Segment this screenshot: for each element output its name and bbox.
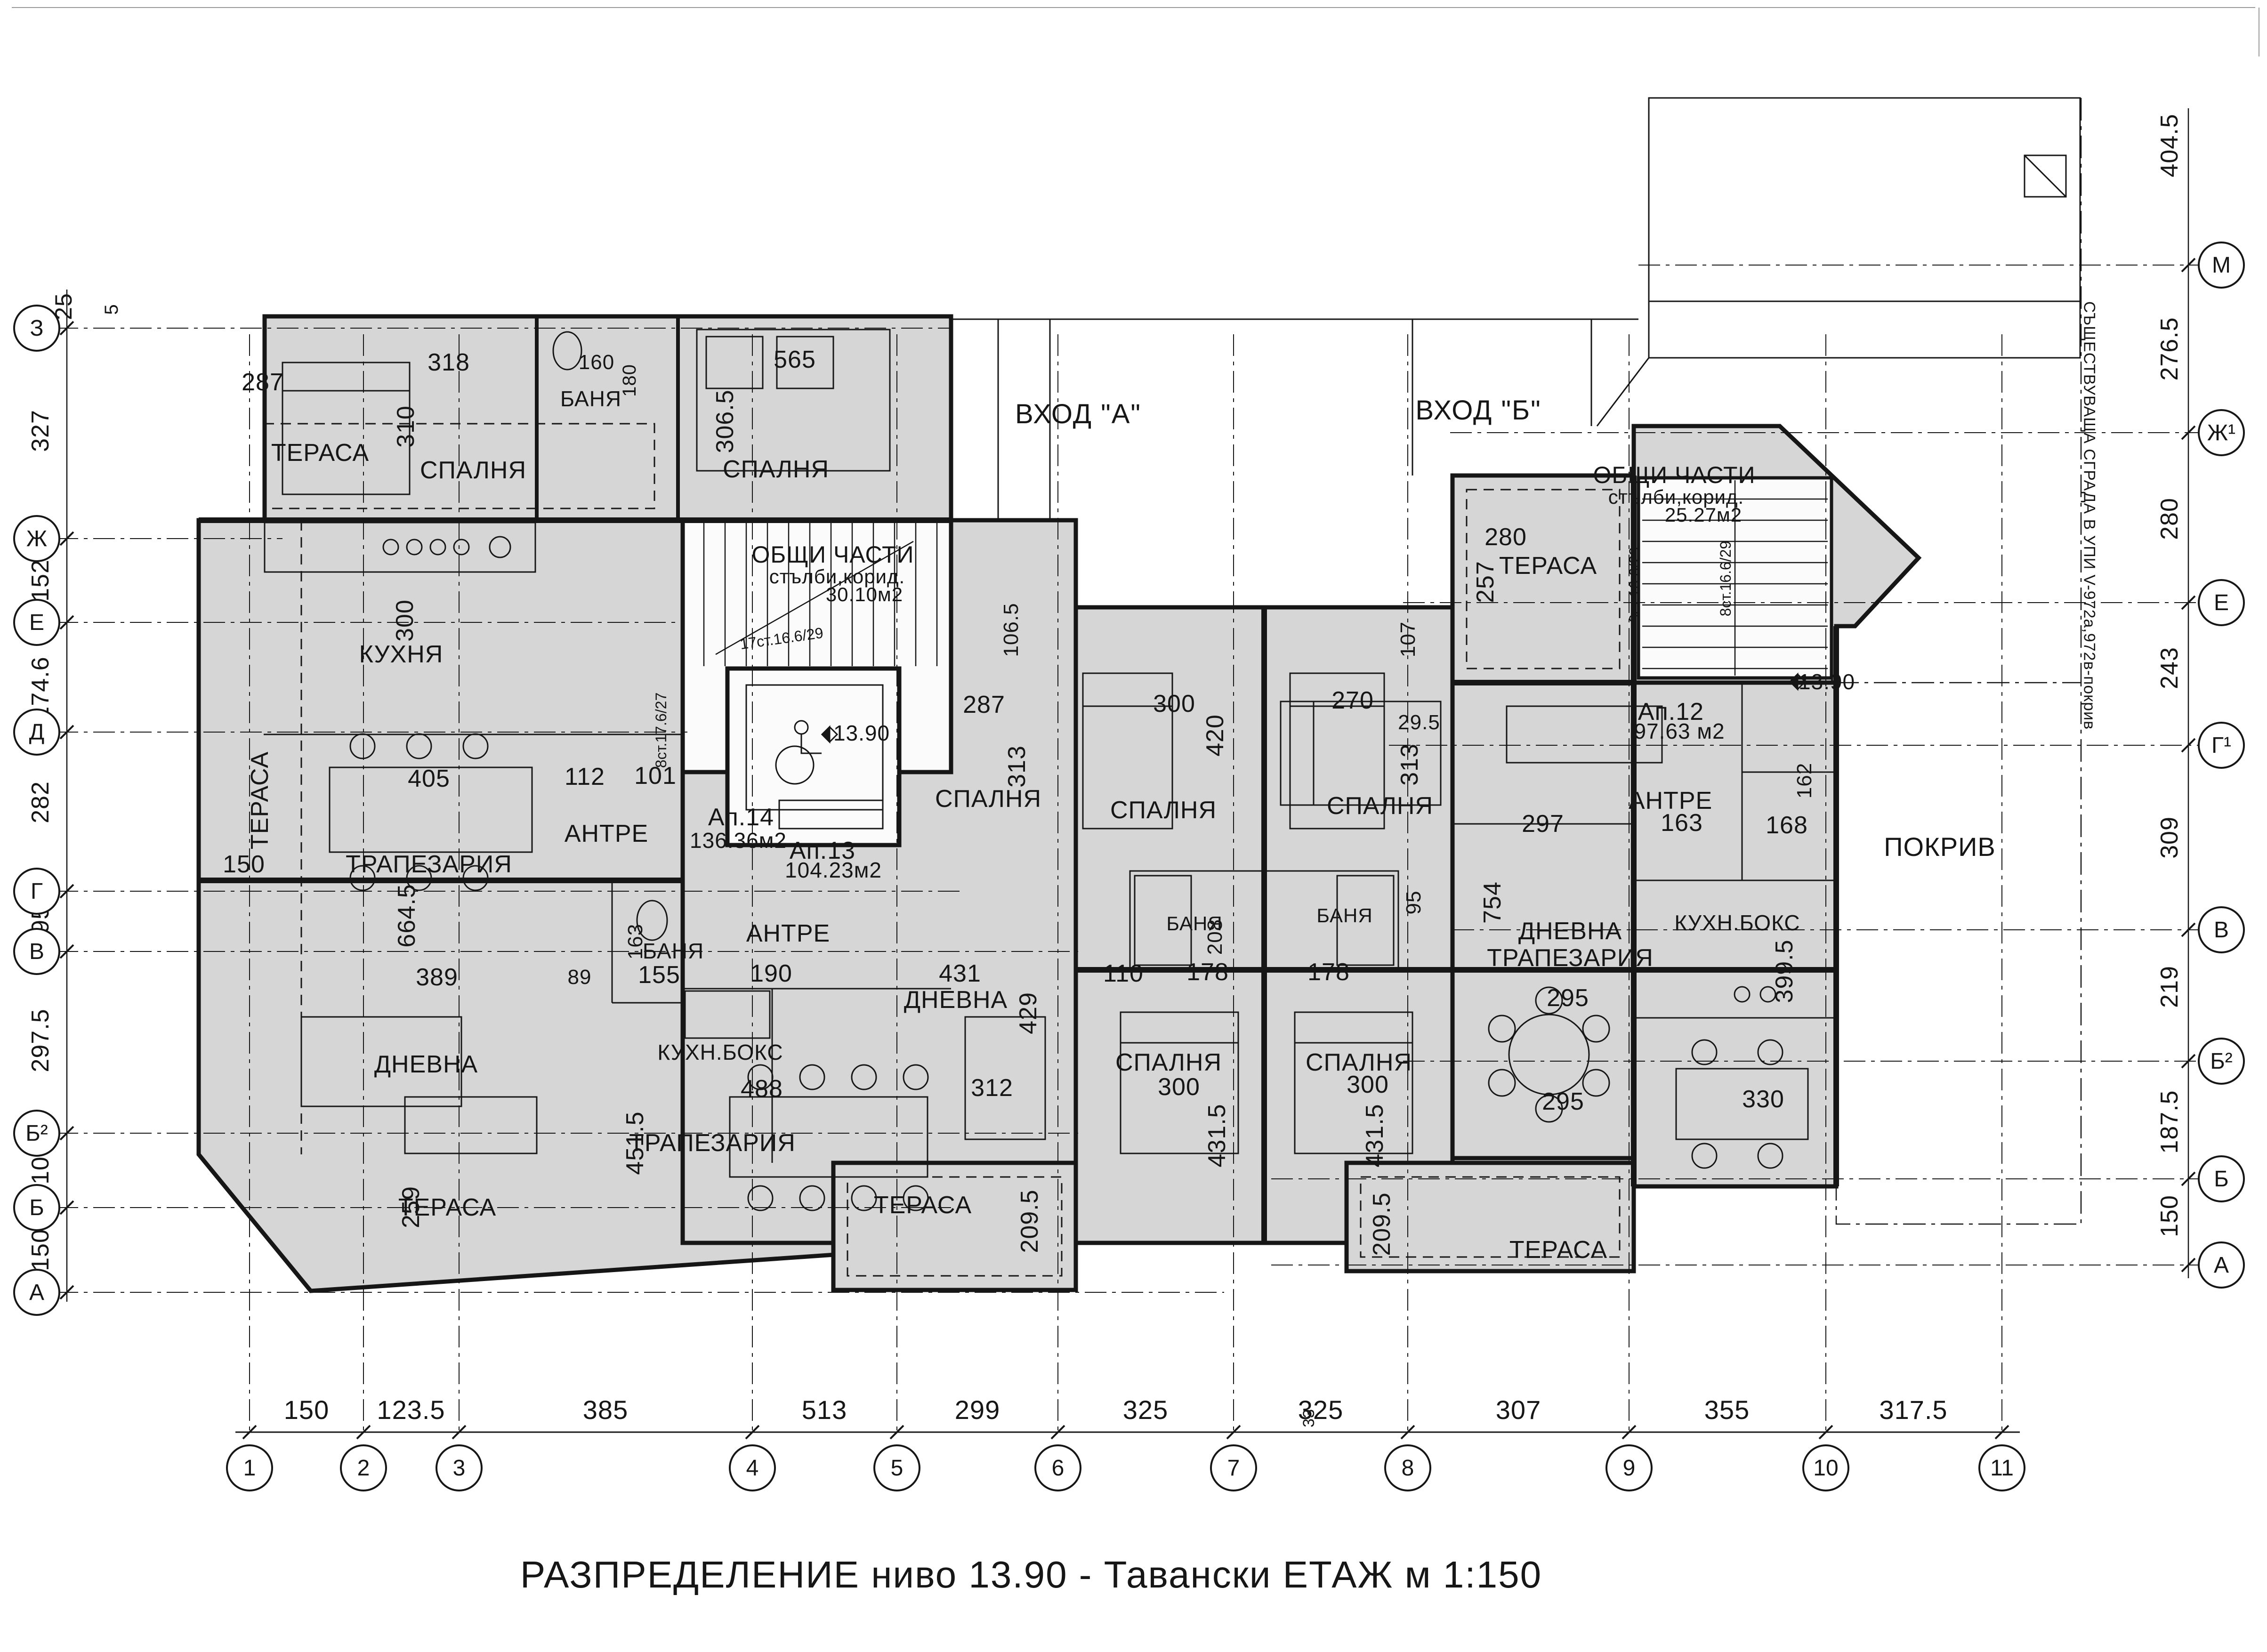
dim-label: 163 xyxy=(1661,811,1703,835)
drawing-title: РАЗПРЕДЕЛЕНИЕ ниво 13.90 - Тавански ЕТАЖ… xyxy=(520,1553,1542,1596)
dim-label: 150 xyxy=(284,1397,329,1423)
dim-label: 312 xyxy=(971,1076,1013,1100)
dim-label: 150 xyxy=(2157,1195,2182,1237)
dim-label: 300 xyxy=(1158,1075,1200,1099)
axis-bubble: Б xyxy=(13,1184,60,1231)
axis-bubble: Г xyxy=(13,868,60,915)
dim-label: 150 xyxy=(223,852,265,877)
dim-label: 107 xyxy=(1398,621,1419,657)
side-note: СЪЩЕСТВУВАЩА СГРАДА В УПИ V-972а,972в-по… xyxy=(2080,301,2098,730)
dim-label: 318 xyxy=(428,350,470,375)
dim-label: 95 xyxy=(1404,891,1424,915)
axis-bubble: Б² xyxy=(2198,1038,2245,1085)
wing-right-low-a xyxy=(1634,970,1836,1186)
dim-label: 307 xyxy=(1496,1397,1541,1423)
dim-label: 178 xyxy=(1186,960,1229,984)
dim-label: 259 xyxy=(399,1186,423,1228)
room-label: КУХНЯ xyxy=(359,642,444,667)
axis-bubble: Д xyxy=(13,709,60,756)
room-label: СПАЛНЯ xyxy=(420,458,526,483)
dim-label: 325 xyxy=(1298,1397,1343,1423)
room-label: ТРАПЕЗАРИЯ xyxy=(629,1131,796,1155)
common-label: 30.10м2 xyxy=(826,585,903,604)
dim-label: 178 xyxy=(1307,960,1350,984)
dim-label: 287 xyxy=(242,370,284,395)
dim-label: 405 xyxy=(408,766,450,791)
dim-label: 313 xyxy=(1397,743,1422,786)
floor-plan-sheet: ТЕРАСАСПАЛНЯБАНЯСПАЛНЯКУХНЯТРАПЕЗАРИЯТЕР… xyxy=(0,0,2267,1652)
common-label: ОБЩИ ЧАСТИ xyxy=(752,543,914,566)
axis-bubble: 7 xyxy=(1210,1444,1257,1491)
room-label: ТЕРАСА xyxy=(874,1193,972,1217)
dim-label: 106.5 xyxy=(1001,603,1022,657)
dim-label: 431.5 xyxy=(1205,1104,1229,1167)
room-label: ТЕРАСА xyxy=(1499,554,1597,578)
dim-label: 295 xyxy=(1542,1089,1584,1114)
axis-bubble: 1 xyxy=(226,1444,273,1491)
dim-label: 297 xyxy=(1522,812,1564,836)
dim-label: 297.5 xyxy=(28,1008,53,1072)
dim-label: 180 xyxy=(620,364,639,397)
dim-label: 101 xyxy=(634,764,677,788)
axis-bubble: 9 xyxy=(1605,1444,1653,1491)
room-label: КУХН.БОКС xyxy=(657,1041,783,1063)
room-label: КУХН.БОКС xyxy=(1674,912,1800,934)
dim-label: 123.5 xyxy=(377,1397,445,1423)
dim-label: 399.5 xyxy=(1772,939,1797,1003)
dim-label: 300 xyxy=(1347,1072,1389,1097)
dim-label: 209.5 xyxy=(1370,1192,1394,1256)
dim-label: 488 xyxy=(741,1077,783,1101)
apt-label: Ап.14 xyxy=(708,805,774,830)
axis-bubble: А xyxy=(13,1269,60,1316)
dim-label: 664.5 xyxy=(395,884,419,947)
dim-label: 160 xyxy=(579,352,614,373)
axis-bubble: В xyxy=(13,928,60,975)
dim-label: 270 xyxy=(1331,688,1374,713)
room-label: АНТРЕ xyxy=(746,921,830,946)
dim-label: 404.5 xyxy=(2157,113,2182,177)
axis-bubble: Г¹ xyxy=(2198,722,2245,769)
dim-label: 300 xyxy=(1153,692,1195,716)
entrance-label: ВХОД "Б" xyxy=(1415,397,1541,424)
dim-label: 110 xyxy=(1103,961,1144,986)
dim-label: 299 xyxy=(955,1397,1000,1423)
dim-label: 280 xyxy=(2157,498,2182,540)
room-label: СПАЛНЯ xyxy=(1115,1050,1222,1075)
apt-label: 136.36м2 xyxy=(690,830,787,851)
stair-label: 8ст.16.6/29 xyxy=(1718,541,1733,617)
axis-bubble: 5 xyxy=(873,1444,920,1491)
dim-label: 219 xyxy=(2157,966,2182,1008)
entrance-label: ВХОД "А" xyxy=(1015,401,1141,428)
dim-label: 420 xyxy=(1203,714,1227,757)
dim-label: 112 xyxy=(565,765,605,789)
axis-bubble: Б xyxy=(2198,1155,2245,1202)
room-label: ДНЕВНА xyxy=(1518,919,1622,943)
dim-label: 280 xyxy=(1484,525,1527,549)
dim-label: 385 xyxy=(583,1397,628,1423)
dim-label: 754 xyxy=(1480,881,1505,924)
dim-label: 190 xyxy=(750,961,792,986)
axis-bubble: Б² xyxy=(13,1110,60,1157)
axis-bubble: Ж¹ xyxy=(2198,409,2245,456)
axis-bubble: 4 xyxy=(729,1444,776,1491)
dim-label: 431 xyxy=(939,961,981,986)
room-label: ТРАПЕЗАРИЯ xyxy=(346,852,512,877)
common-label: 25.27м2 xyxy=(1665,505,1742,525)
dim-label: 330 xyxy=(1742,1087,1784,1112)
stair-label: 9ст.16.6/29 xyxy=(1627,547,1642,623)
dim-label: 155 xyxy=(638,963,680,987)
axis-bubble: 3 xyxy=(436,1444,483,1491)
dim-label: 429 xyxy=(1016,992,1041,1034)
apt-label: 104.23м2 xyxy=(785,859,882,881)
dim-label: 287 xyxy=(963,693,1005,717)
dim-label: 163 xyxy=(625,924,646,959)
dim-label: 300 xyxy=(393,599,417,642)
dim-label: 295 xyxy=(1547,986,1589,1010)
wing-top-strip xyxy=(265,316,951,520)
axis-bubble: М xyxy=(2198,242,2245,289)
axis-bubble: Е xyxy=(2198,579,2245,626)
room-label: ТЕРАСА xyxy=(1509,1238,1607,1262)
axis-bubble: Е xyxy=(13,599,60,646)
dim-label: 187.5 xyxy=(2157,1090,2182,1153)
dim-label: 306.5 xyxy=(713,389,737,453)
dim-label: 451.5 xyxy=(623,1111,647,1175)
dim-label: 389 xyxy=(416,965,458,990)
apt-label: 97.63 м2 xyxy=(1634,720,1725,742)
dim-label: 565 xyxy=(774,347,816,372)
dim-label: 355 xyxy=(1704,1397,1750,1423)
dim-label: 431.5 xyxy=(1363,1104,1387,1167)
dim-label: 162 xyxy=(1794,763,1815,798)
room-label: БАНЯ xyxy=(560,388,621,410)
room-label: ТРАПЕЗАРИЯ xyxy=(1487,946,1654,970)
room-label: ТЕРАСА xyxy=(248,751,272,849)
room-label: СПАЛНЯ xyxy=(723,457,829,482)
dim-label: 208 xyxy=(1205,919,1226,955)
dim-label: 317.5 xyxy=(1879,1397,1947,1423)
axis-bubble: А xyxy=(2198,1241,2245,1289)
dim-label: 276.5 xyxy=(2157,317,2182,380)
axis-bubble: З xyxy=(13,305,60,352)
room-label: ПОКРИВ xyxy=(1884,834,1995,860)
axis-bubble: В xyxy=(2198,906,2245,953)
dim-label: 513 xyxy=(802,1397,847,1423)
roof-area xyxy=(1836,683,2081,1224)
dim-label: 150 xyxy=(28,1229,53,1271)
room-label: ДНЕВНА xyxy=(904,988,1008,1012)
dim-label: 325 xyxy=(1123,1397,1168,1423)
dim-label: 5 xyxy=(102,304,121,314)
axis-bubble: 6 xyxy=(1034,1444,1081,1491)
dim-label: 152 xyxy=(28,559,53,602)
dim-label: 309 xyxy=(2157,816,2182,859)
room-label: СПАЛНЯ xyxy=(935,787,1041,811)
axis-bubble: 10 xyxy=(1802,1444,1849,1491)
common-label: ОБЩИ ЧАСТИ xyxy=(1593,463,1756,487)
dim-label: 168 xyxy=(1766,813,1808,838)
dim-label: 29.5 xyxy=(1398,712,1440,733)
level-label: 13.90 xyxy=(833,722,890,744)
level-label: 13.90 xyxy=(1799,671,1855,693)
axis-bubble: 11 xyxy=(1978,1444,2025,1491)
dim-label: 313 xyxy=(1005,745,1029,788)
axis-bubble: Ж xyxy=(13,515,60,562)
dim-label: 89 xyxy=(568,967,592,988)
dim-label: 282 xyxy=(28,781,53,823)
dim-label: 310 xyxy=(394,405,418,448)
room-label: СПАЛНЯ xyxy=(1110,798,1217,822)
existing-building xyxy=(1597,98,2080,426)
room-label: БАНЯ xyxy=(1316,906,1372,926)
dim-label: 209.5 xyxy=(1017,1189,1042,1253)
axis-bubble: 2 xyxy=(340,1444,387,1491)
room-label: ТЕРАСА xyxy=(271,441,369,465)
room-label: СПАЛНЯ xyxy=(1327,794,1433,818)
room-label: АНТРЕ xyxy=(565,822,648,846)
room-label: ДНЕВНА xyxy=(374,1052,478,1077)
axis-bubble: 8 xyxy=(1384,1444,1431,1491)
property-lines xyxy=(1836,98,2081,1224)
room-label: БАНЯ xyxy=(643,940,704,962)
dim-label: 243 xyxy=(2157,647,2182,689)
dim-label: 257 xyxy=(1473,561,1498,603)
dim-label: 327 xyxy=(28,410,53,452)
stair-label: 8ст.17.6/27 xyxy=(653,693,669,768)
wing-right-low-b xyxy=(1452,970,1634,1158)
sheet-margins xyxy=(12,8,2259,56)
